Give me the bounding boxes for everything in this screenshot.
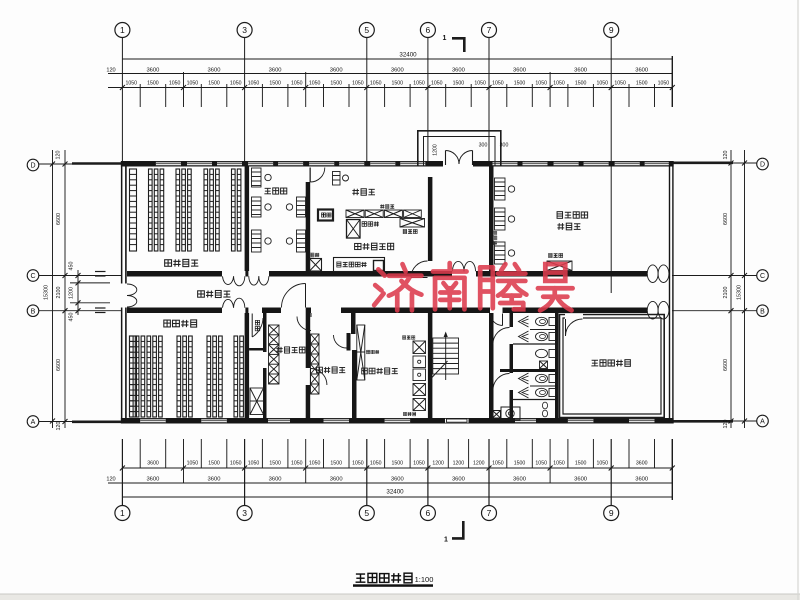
svg-text:C: C xyxy=(760,273,765,280)
svg-text:1200: 1200 xyxy=(432,461,444,467)
svg-text:1500: 1500 xyxy=(330,461,342,467)
svg-text:1500: 1500 xyxy=(330,81,342,87)
svg-text:120: 120 xyxy=(723,151,729,160)
svg-text:3: 3 xyxy=(242,25,247,35)
svg-text:1: 1 xyxy=(120,508,125,518)
svg-text:1:100: 1:100 xyxy=(415,575,434,584)
svg-text:C: C xyxy=(30,273,35,280)
svg-text:1050: 1050 xyxy=(413,81,425,87)
svg-text:3600: 3600 xyxy=(146,68,159,74)
svg-text:1: 1 xyxy=(120,25,125,35)
svg-text:A: A xyxy=(31,419,36,426)
svg-text:120: 120 xyxy=(106,477,115,483)
svg-text:3600: 3600 xyxy=(391,68,404,74)
svg-text:1500: 1500 xyxy=(575,461,587,467)
svg-text:1050: 1050 xyxy=(553,461,565,467)
svg-text:120: 120 xyxy=(56,151,62,160)
svg-text:1050: 1050 xyxy=(230,461,242,467)
svg-text:15300: 15300 xyxy=(44,285,50,300)
svg-text:1500: 1500 xyxy=(269,461,281,467)
svg-text:1050: 1050 xyxy=(492,81,504,87)
svg-text:120: 120 xyxy=(56,422,62,431)
svg-text:6600: 6600 xyxy=(56,213,62,225)
svg-text:1500: 1500 xyxy=(208,461,220,467)
svg-text:6600: 6600 xyxy=(723,359,729,371)
svg-text:6: 6 xyxy=(426,25,431,35)
svg-text:1500: 1500 xyxy=(147,81,159,87)
svg-text:1050: 1050 xyxy=(370,81,382,87)
svg-text:1500: 1500 xyxy=(392,81,404,87)
svg-text:5: 5 xyxy=(364,25,369,35)
svg-text:A: A xyxy=(760,419,765,426)
svg-text:6600: 6600 xyxy=(56,359,62,371)
svg-text:1050: 1050 xyxy=(370,461,382,467)
svg-text:1050: 1050 xyxy=(474,81,486,87)
svg-text:7: 7 xyxy=(487,508,492,518)
svg-text:1050: 1050 xyxy=(535,81,547,87)
svg-text:1050: 1050 xyxy=(187,81,199,87)
svg-text:3600: 3600 xyxy=(636,461,648,467)
svg-text:32400: 32400 xyxy=(386,489,404,496)
svg-text:D: D xyxy=(760,162,765,169)
svg-text:1050: 1050 xyxy=(413,461,425,467)
svg-text:1050: 1050 xyxy=(352,81,364,87)
svg-text:1: 1 xyxy=(444,537,448,544)
svg-text:3600: 3600 xyxy=(513,68,526,74)
svg-text:1500: 1500 xyxy=(514,81,526,87)
svg-text:1050: 1050 xyxy=(492,461,504,467)
svg-text:3600: 3600 xyxy=(452,477,465,483)
svg-text:1200: 1200 xyxy=(453,461,465,467)
svg-text:1050: 1050 xyxy=(597,81,609,87)
svg-text:3: 3 xyxy=(242,508,247,518)
svg-text:1050: 1050 xyxy=(658,81,670,87)
svg-text:120: 120 xyxy=(723,420,729,429)
svg-text:1050: 1050 xyxy=(614,81,626,87)
svg-text:5: 5 xyxy=(364,508,369,518)
svg-text:120: 120 xyxy=(106,68,115,74)
svg-text:15300: 15300 xyxy=(737,285,743,300)
svg-text:1050: 1050 xyxy=(309,461,321,467)
svg-text:1050: 1050 xyxy=(352,461,364,467)
svg-text:3600: 3600 xyxy=(391,477,404,483)
svg-text:1050: 1050 xyxy=(597,461,609,467)
svg-text:1050: 1050 xyxy=(431,81,443,87)
svg-text:B: B xyxy=(31,308,36,315)
svg-text:1050: 1050 xyxy=(248,461,260,467)
svg-text:1050: 1050 xyxy=(535,461,547,467)
svg-text:3600: 3600 xyxy=(269,477,282,483)
svg-text:450: 450 xyxy=(69,313,75,322)
svg-text:D: D xyxy=(30,163,35,170)
svg-text:1500: 1500 xyxy=(392,461,404,467)
svg-text:B: B xyxy=(760,308,765,315)
svg-text:3600: 3600 xyxy=(513,477,526,483)
svg-text:1200: 1200 xyxy=(473,461,485,467)
svg-text:3600: 3600 xyxy=(574,477,587,483)
svg-text:3600: 3600 xyxy=(147,461,159,467)
svg-text:9: 9 xyxy=(609,25,614,35)
svg-text:32400: 32400 xyxy=(399,52,417,59)
svg-text:3600: 3600 xyxy=(635,68,648,74)
svg-text:1200: 1200 xyxy=(69,287,75,299)
svg-text:1050: 1050 xyxy=(309,81,321,87)
svg-text:9: 9 xyxy=(609,508,614,518)
svg-text:3600: 3600 xyxy=(208,477,221,483)
svg-text:450: 450 xyxy=(69,262,75,271)
svg-text:300: 300 xyxy=(500,143,509,149)
svg-text:1050: 1050 xyxy=(126,81,138,87)
svg-text:1050: 1050 xyxy=(248,81,260,87)
svg-text:1500: 1500 xyxy=(636,81,648,87)
svg-text:1500: 1500 xyxy=(269,81,281,87)
svg-text:2100: 2100 xyxy=(723,287,729,299)
svg-text:1050: 1050 xyxy=(169,81,181,87)
svg-text:1050: 1050 xyxy=(553,81,565,87)
svg-text:1050: 1050 xyxy=(187,461,199,467)
svg-text:1500: 1500 xyxy=(575,81,587,87)
svg-text:6: 6 xyxy=(426,508,431,518)
svg-text:2100: 2100 xyxy=(56,287,62,299)
svg-text:3600: 3600 xyxy=(208,68,221,74)
svg-text:1050: 1050 xyxy=(291,81,303,87)
svg-text:1500: 1500 xyxy=(453,81,465,87)
svg-text:300: 300 xyxy=(479,143,488,149)
svg-text:1200: 1200 xyxy=(433,144,439,156)
svg-text:3600: 3600 xyxy=(635,477,648,483)
svg-text:1500: 1500 xyxy=(514,461,526,467)
svg-text:3600: 3600 xyxy=(574,68,587,74)
svg-text:1050: 1050 xyxy=(230,81,242,87)
svg-text:1: 1 xyxy=(443,35,447,42)
svg-text:3600: 3600 xyxy=(452,68,465,74)
svg-text:1050: 1050 xyxy=(291,461,303,467)
svg-text:1500: 1500 xyxy=(208,81,220,87)
svg-text:3600: 3600 xyxy=(146,477,159,483)
svg-text:3600: 3600 xyxy=(330,477,343,483)
svg-text:3600: 3600 xyxy=(330,68,343,74)
svg-text:3600: 3600 xyxy=(269,68,282,74)
svg-text:7: 7 xyxy=(487,25,492,35)
svg-text:6600: 6600 xyxy=(723,213,729,225)
